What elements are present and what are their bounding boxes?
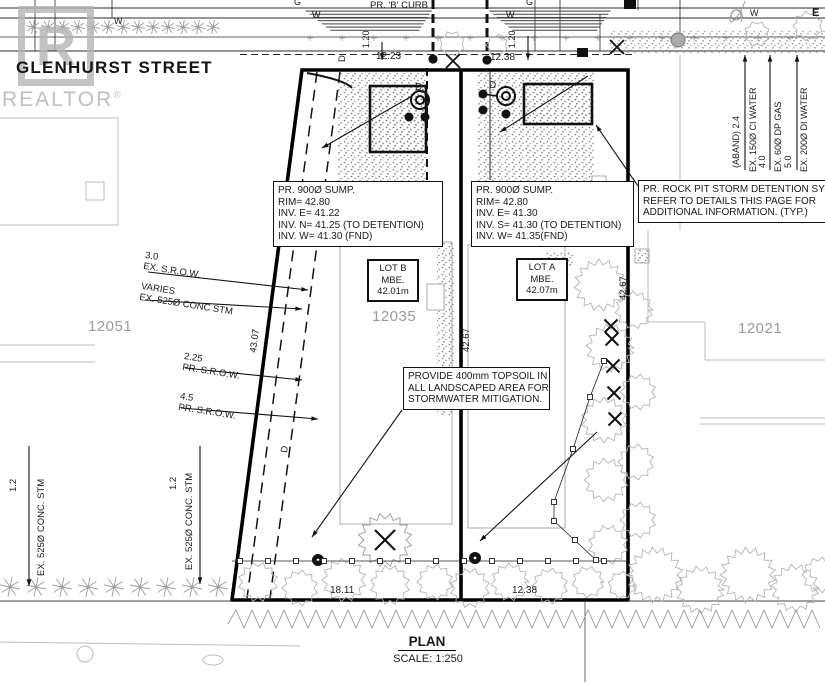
fence-post <box>546 559 551 564</box>
fence-post <box>266 559 271 564</box>
sidewalk-stipple <box>608 30 825 53</box>
fence-post <box>573 538 578 543</box>
curb-offset-dim: 1.20 <box>361 30 372 48</box>
east-marker: E <box>812 8 819 19</box>
tree-symbol <box>146 20 160 34</box>
tree-symbol <box>161 20 175 34</box>
fence-post <box>594 558 599 563</box>
lot-a-tag: LOT A MBE. 42.07m <box>516 258 568 301</box>
leader-arrow <box>301 287 308 292</box>
manhole-symbol <box>671 33 685 47</box>
realtor-watermark-text: REALTOR® <box>2 88 123 112</box>
x-mark <box>606 333 619 346</box>
watermain-marker: W <box>506 10 515 21</box>
leader-arrow <box>795 55 800 62</box>
fence-post <box>490 559 495 564</box>
drain-marker: D <box>279 445 291 453</box>
shrub-symbol <box>620 374 655 410</box>
west-storm-label-1: EX. 525Ø CONC. STM <box>36 479 47 576</box>
plan-title: PLAN <box>398 634 456 651</box>
shrub-symbol <box>572 567 604 598</box>
curb-offset-dim: 1.20 <box>507 30 518 48</box>
gas-marker: G <box>526 0 533 8</box>
shrub-symbol <box>676 566 724 614</box>
shrub-symbol <box>720 547 776 603</box>
tree-symbol <box>176 20 190 34</box>
x-mark <box>607 360 620 373</box>
depth-dim-east: 42.67 <box>618 276 629 300</box>
x-mark <box>609 413 622 426</box>
fence-post <box>602 359 607 364</box>
shrub-symbol <box>608 571 636 598</box>
lot-b-tag: LOT B MBE. 42.01m <box>367 259 419 302</box>
srow-dashed-line <box>270 72 340 598</box>
tree-symbol <box>0 577 20 597</box>
fence-post <box>552 519 557 524</box>
shrub-symbol <box>618 444 653 480</box>
note-sump-a: PR. 900Ø SUMP. RIM= 42.80 INV. E= 41.30 … <box>471 181 634 247</box>
leader-arrow <box>322 143 329 148</box>
drain-marker: D <box>337 55 348 62</box>
tree-symbol <box>208 577 228 597</box>
drain-marker: D <box>489 80 496 91</box>
tree-symbol <box>52 577 72 597</box>
fence-post <box>462 559 467 564</box>
address-label-east: 12021 <box>738 320 782 337</box>
drain-marker: D <box>415 82 422 93</box>
street-name-label: GLENHURST STREET <box>16 58 213 78</box>
tree-symbol <box>191 20 205 34</box>
site-plan-sheet: R REALTOR® GLENHURST STREET PR. 'B' CURB… <box>0 0 825 684</box>
driveway-letdown-hatch <box>303 9 433 31</box>
fence-post <box>294 559 299 564</box>
tree-symbol <box>156 577 176 597</box>
east-utility-offset-gas: 4.0 <box>757 155 768 168</box>
note-rock-pit: PR. ROCK PIT STORM DETENTION SYSTEM REFE… <box>638 180 825 223</box>
fence-post <box>518 559 523 564</box>
frontage-dim-b: 12.23 <box>376 51 401 62</box>
plan-scale: SCALE: 1:250 <box>383 653 473 665</box>
fence-post <box>406 559 411 564</box>
fence-post <box>378 559 383 564</box>
leader-arrow <box>768 55 773 62</box>
note-sump-b: PR. 900Ø SUMP. RIM= 42.80 INV. E= 41.22 … <box>273 181 443 247</box>
watermain-marker: W <box>114 16 123 27</box>
leader-arrow <box>312 530 318 537</box>
tree-symbol <box>206 20 220 34</box>
leader-arrow <box>295 306 302 311</box>
fence-post <box>588 395 593 400</box>
tree-symbol <box>101 20 115 34</box>
fence-post <box>574 559 579 564</box>
watermain-marker: W <box>312 10 321 21</box>
rock-pit-a <box>524 84 592 124</box>
note-topsoil: PROVIDE 400mm TOPSOIL IN ALL LANDSCAPED … <box>403 367 550 410</box>
west-storm-offset-1: 1.2 <box>8 479 19 492</box>
shrub-symbol <box>417 564 452 600</box>
east-utility-offset-water-ci: (ABAND) 2.4 <box>731 116 742 168</box>
shrub-symbol <box>582 397 627 443</box>
leader-arrow <box>743 55 748 62</box>
site-plan-linework <box>0 0 825 684</box>
fence-post <box>552 500 557 505</box>
leader-arrow <box>596 125 602 132</box>
shrub-symbol <box>802 557 825 593</box>
watermain-marker: W <box>750 8 759 19</box>
frontage-dim-a: 12.38 <box>490 52 515 63</box>
tree-symbol <box>78 577 98 597</box>
fence-post <box>434 559 439 564</box>
tree-symbol <box>130 577 150 597</box>
west-storm-offset-2: 1.2 <box>168 477 179 490</box>
shrub-symbol <box>620 502 655 538</box>
gas-marker: G <box>294 0 301 8</box>
tree-symbol <box>131 20 145 34</box>
rear-dim-a: 12.38 <box>512 585 537 596</box>
tree-symbol <box>104 577 124 597</box>
address-label-west: 12051 <box>88 318 132 335</box>
x-mark <box>375 530 395 550</box>
hedge-line <box>228 610 820 628</box>
address-label-site: 12035 <box>372 308 416 325</box>
fence-post <box>350 559 355 564</box>
east-utility-offset-water-di: 5.0 <box>783 155 794 168</box>
shrub-symbol <box>627 547 683 603</box>
fence-post <box>238 559 243 564</box>
fence-post <box>571 447 576 452</box>
west-storm-label-2: EX. 525Ø CONC. STM <box>184 473 195 570</box>
curb-label: PR. 'B' CURB <box>370 0 428 11</box>
x-mark <box>608 387 621 400</box>
leader-arrow <box>526 53 531 60</box>
east-utility-label-water-di: EX. 200Ø DI WATER <box>799 87 810 172</box>
depth-dim-mid: 42.67 <box>461 328 472 352</box>
rear-dim-b: 18.11 <box>330 585 354 596</box>
fence-post <box>322 559 327 564</box>
shrub-symbol <box>440 32 464 56</box>
x-mark <box>446 54 460 68</box>
fence-post <box>602 559 607 564</box>
